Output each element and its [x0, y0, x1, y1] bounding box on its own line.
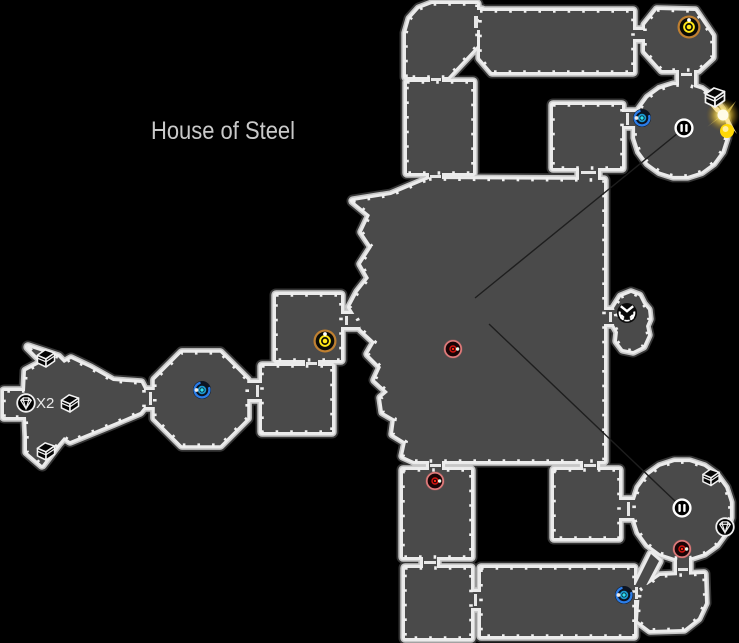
svg-text:X2: X2	[36, 395, 54, 412]
svg-text:House of Steel: House of Steel	[151, 117, 295, 145]
